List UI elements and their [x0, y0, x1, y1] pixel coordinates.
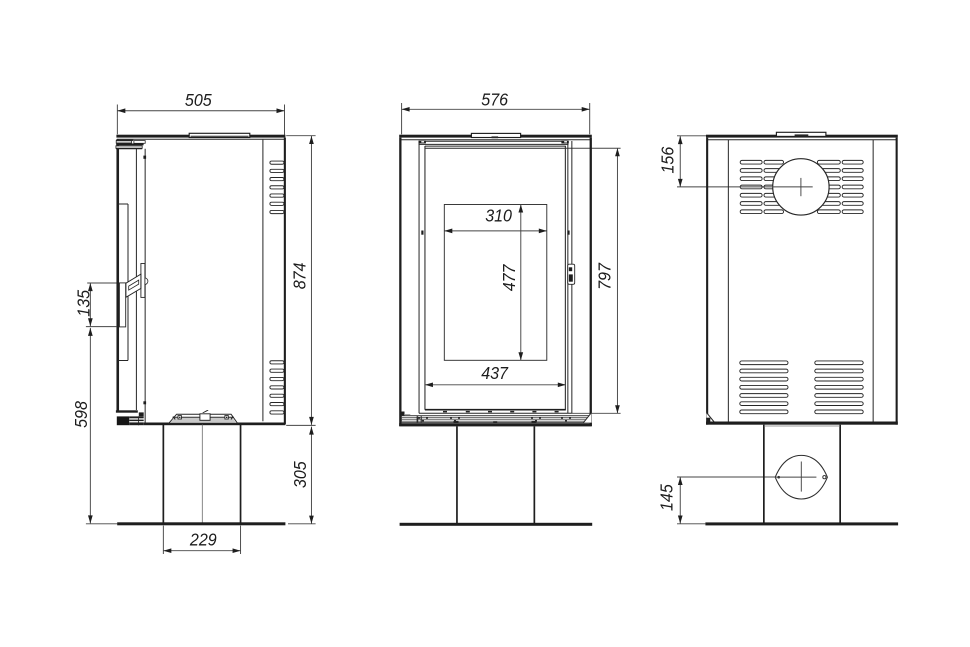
svg-text:505: 505	[185, 90, 212, 110]
svg-text:156: 156	[657, 146, 677, 173]
svg-text:305: 305	[290, 461, 310, 488]
svg-text:576: 576	[481, 89, 508, 109]
svg-text:145: 145	[657, 484, 677, 511]
svg-text:874: 874	[290, 262, 310, 289]
svg-text:229: 229	[189, 529, 217, 549]
svg-text:310: 310	[485, 206, 512, 226]
svg-text:477: 477	[499, 263, 519, 291]
svg-text:135: 135	[73, 290, 93, 317]
svg-text:797: 797	[594, 262, 614, 290]
svg-text:598: 598	[71, 401, 91, 428]
svg-text:437: 437	[481, 363, 509, 383]
